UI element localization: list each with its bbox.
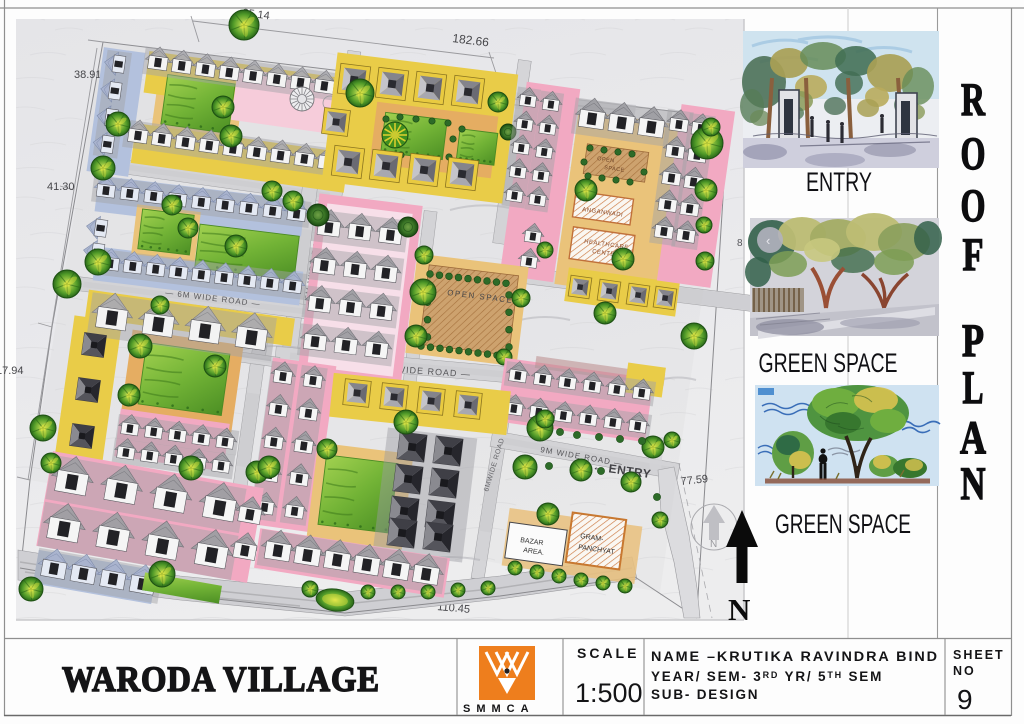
svg-text:A: A (960, 412, 986, 464)
svg-text:P: P (962, 315, 984, 367)
svg-text:F: F (963, 229, 984, 281)
svg-text:SMMCA: SMMCA (463, 703, 535, 715)
svg-text:GREEN SPACE: GREEN SPACE (759, 348, 898, 378)
svg-text:9: 9 (957, 684, 973, 715)
svg-text:NAME –KRUTIKA RAVINDRA BIND: NAME –KRUTIKA RAVINDRA BIND (651, 649, 939, 664)
svg-text:O: O (961, 128, 986, 180)
svg-text:R: R (961, 74, 986, 126)
svg-text:O: O (961, 180, 986, 232)
svg-text:N: N (961, 458, 986, 510)
svg-text:SHEET: SHEET (953, 648, 1005, 662)
svg-text:GREEN SPACE: GREEN SPACE (775, 509, 911, 539)
svg-text:SCALE: SCALE (577, 645, 639, 661)
svg-text:SUB- DESIGN: SUB- DESIGN (651, 687, 759, 702)
svg-text:L: L (963, 362, 984, 414)
svg-text:N: N (728, 592, 750, 627)
svg-text:8: 8 (737, 238, 743, 249)
svg-text:WARODA VILLAGE: WARODA VILLAGE (62, 659, 380, 699)
svg-text:17.94: 17.94 (0, 365, 24, 377)
svg-text:NO: NO (953, 664, 976, 678)
svg-text:‹: ‹ (766, 233, 770, 248)
svg-text:N: N (710, 539, 717, 550)
svg-text:1:500: 1:500 (575, 678, 643, 708)
svg-text:41.30: 41.30 (47, 181, 75, 193)
svg-text:ENTRY: ENTRY (806, 167, 872, 197)
